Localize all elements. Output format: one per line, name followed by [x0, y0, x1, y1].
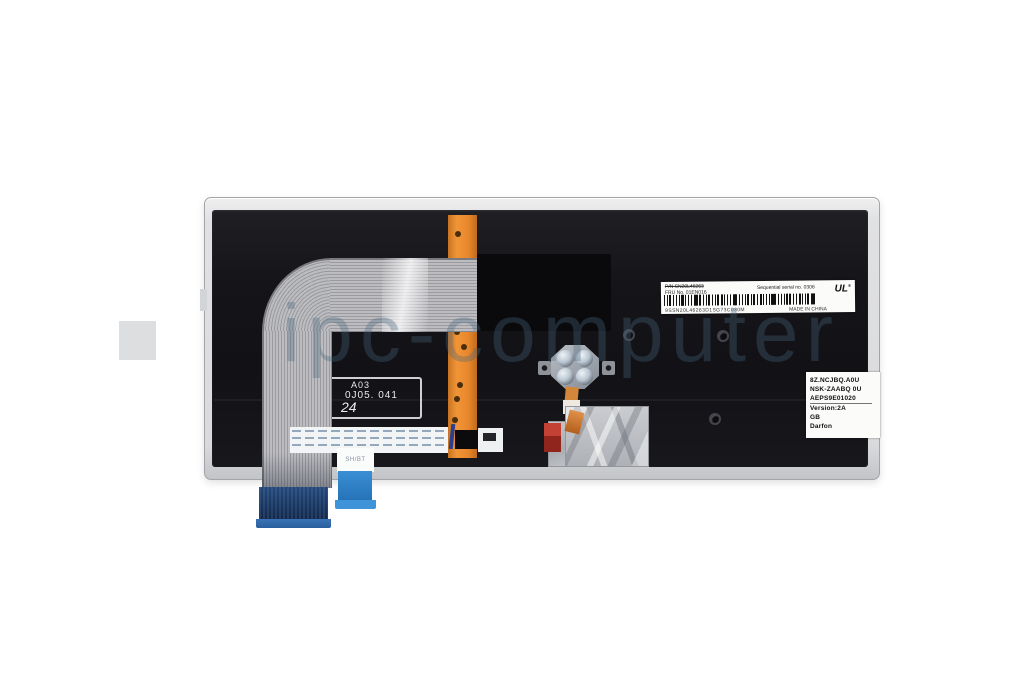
flex-end-mark: [483, 433, 496, 441]
flex-micro-text: [292, 430, 446, 450]
flex-tab-label: SH/BT: [337, 448, 374, 472]
etched-line-1: A03: [351, 380, 370, 390]
spec-line-5: GB: [810, 413, 880, 422]
main-cable-connector: [259, 487, 328, 520]
rivet-dot: [455, 231, 461, 237]
etched-line-3: 24: [341, 399, 357, 415]
red-tape-tab-top: [544, 423, 561, 436]
ribbon-cable-shadow: [262, 452, 332, 488]
screw-hole: [709, 413, 721, 425]
watermark-square-icon: [119, 321, 156, 360]
rivet-dot: [457, 382, 463, 388]
watermark-text: ipc-computer: [282, 293, 840, 375]
black-label-on-strip: [455, 430, 478, 449]
spec-line-4: Version:2A: [810, 404, 880, 413]
rivet-dot: [454, 396, 460, 402]
registered-mark: ®: [848, 283, 851, 288]
frame-notch-left: [200, 289, 207, 311]
rivet-dot: [452, 417, 458, 423]
product-photo: A03 0J05. 041 24 SH/BT P/N SN20L46263 FR…: [0, 0, 1024, 680]
spec-line-6: Darfon: [810, 422, 880, 431]
small-flex-connector-lip: [335, 500, 376, 509]
red-tape-tab-bottom: [544, 436, 561, 452]
etched-stamp-label: A03 0J05. 041 24: [329, 377, 422, 419]
spec-line-2: NSK-ZAABQ 0U: [810, 385, 880, 394]
spec-label: 8Z.NCJBQ.A0U NSK-ZAABQ 0U AEPS9E01020 Ve…: [806, 372, 880, 438]
small-flex-connector: [338, 471, 372, 501]
main-cable-connector-lip: [256, 519, 331, 528]
spec-line-3: AEPS9E01020: [810, 394, 872, 404]
